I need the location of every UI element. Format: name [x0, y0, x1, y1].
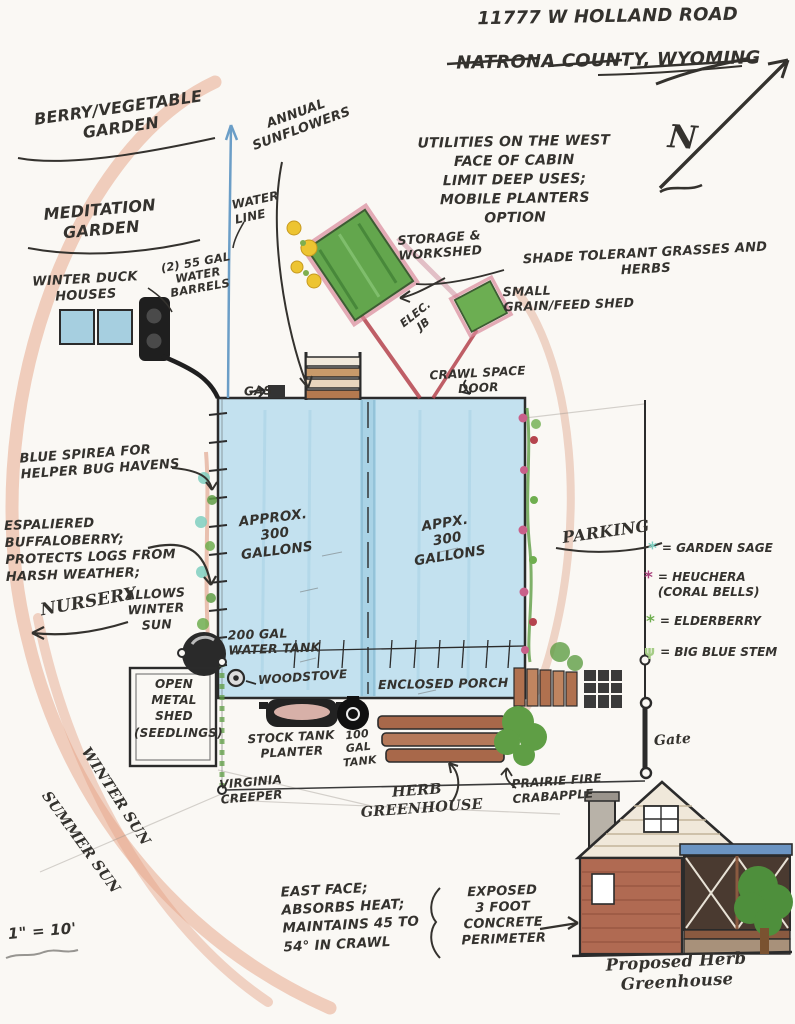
address-line2: NATRONA COUNTY, WYOMING — [456, 47, 761, 73]
espaliered-label: ESPALIERED BUFFALOBERRY; PROTECTS LOGS F… — [4, 513, 177, 586]
virginia-creeper-label: VIRGINIA CREEPER — [219, 772, 284, 807]
east-face-note: EAST FACE; ABSORBS HEAT; MAINTAINS 45 TO… — [280, 876, 420, 956]
house-elevation-shape — [572, 782, 793, 956]
exposed-concrete-note: EXPOSED 3 FOOT CONCRETE PERIMETER — [442, 882, 564, 950]
stock-tank-label: STOCK TANK PLANTER — [243, 728, 339, 762]
address-title: 11777 W HOLLAND ROAD NATRONA COUNTY, WYO… — [437, 3, 778, 75]
duck-houses-shape — [60, 310, 132, 344]
site-plan-page: 11777 W HOLLAND ROAD NATRONA COUNTY, WYO… — [0, 0, 795, 1024]
gas-label: GAS — [244, 384, 273, 400]
grass-sprig-icon: ψ — [644, 645, 655, 659]
asterisk-icon: * — [648, 541, 657, 558]
stock-tank-planter-shape — [259, 699, 345, 727]
address-line1: 11777 W HOLLAND ROAD — [477, 4, 738, 30]
crawl-door-label: CRAWL SPACE DOOR — [427, 363, 528, 397]
tank-100-shape — [337, 696, 369, 730]
left-shrubs-shape — [195, 452, 217, 649]
enclosed-porch-label: ENCLOSED PORCH — [378, 675, 509, 693]
tank-200-label: 200 GAL WATER TANK — [227, 624, 320, 658]
storage-workshed-label: STORAGE & WORKSHED — [397, 227, 483, 263]
water-barrels-shape — [139, 297, 218, 398]
herb-greenhouse-beds-shape — [378, 716, 506, 762]
legend-label: = BIG BLUE STEM — [660, 645, 777, 660]
asterisk-icon: * — [646, 614, 655, 631]
chair-shape — [306, 352, 360, 400]
porch-steps-shape — [514, 668, 622, 708]
legend-item-garden-sage: * = GARDEN SAGE — [648, 541, 773, 558]
open-metal-shed-label: OPEN METAL SHED (SEEDLINGS) — [134, 676, 214, 741]
grain-shed-label: SMALL GRAIN/FEED SHED — [503, 280, 635, 315]
legend-label: = HEUCHERA (CORAL BELLS) — [658, 570, 760, 600]
asterisk-icon: * — [644, 570, 653, 587]
gate-label: Gate — [653, 731, 691, 751]
legend-item-big-blue-stem: ψ = BIG BLUE STEM — [644, 645, 777, 660]
legend-label: = ELDERBERRY — [660, 614, 761, 629]
water-tank-200-shape — [178, 632, 226, 676]
tank-100-label: 100 GAL TANK — [334, 726, 383, 771]
north-label: N — [667, 117, 699, 158]
legend-item-elderberry: * = ELDERBERRY — [646, 614, 761, 631]
legend-label: = GARDEN SAGE — [662, 541, 773, 556]
utilities-note: UTILITIES ON THE WEST FACE OF CABIN LIMI… — [381, 131, 648, 230]
legend-item-heuchera: * = HEUCHERA (CORAL BELLS) — [644, 570, 760, 600]
